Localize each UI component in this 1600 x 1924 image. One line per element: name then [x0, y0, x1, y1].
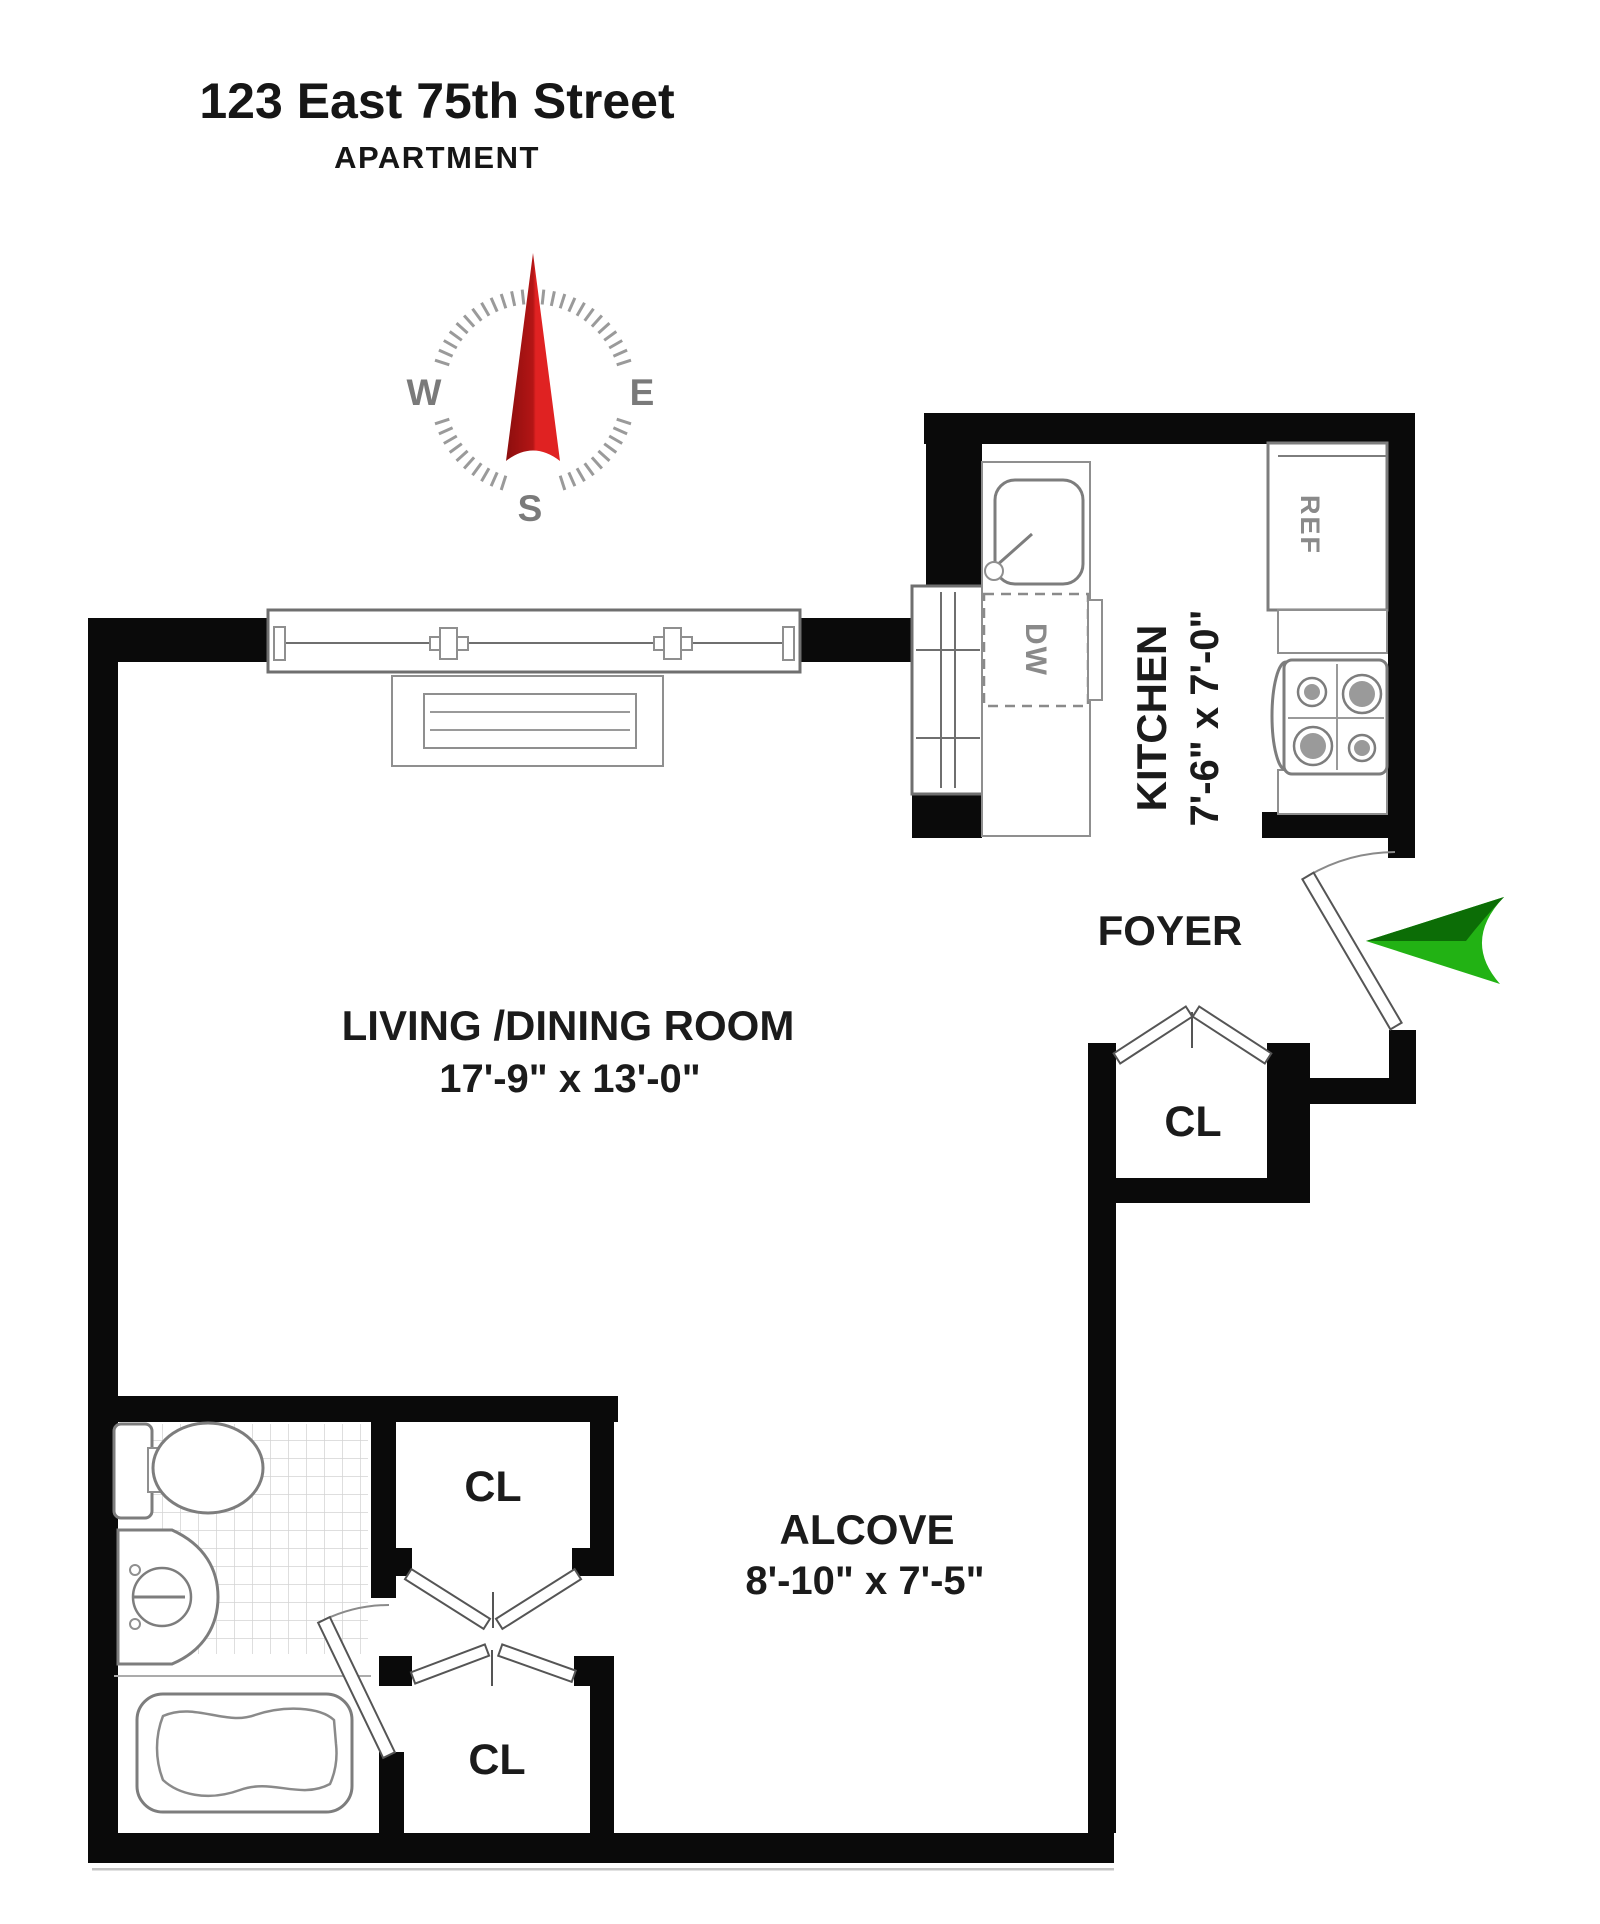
- compass-tick: [435, 419, 449, 424]
- compass-tick: [491, 298, 497, 312]
- page-subtitle: APARTMENT: [334, 140, 540, 175]
- sink-handle-icon: [130, 1619, 140, 1629]
- compass-tick: [569, 298, 575, 312]
- compass-tick: [585, 309, 594, 321]
- compass-tick: [592, 316, 602, 327]
- doors: [318, 852, 1402, 1758]
- door-jamb: [379, 1656, 412, 1686]
- floorplan-page: 123 East 75th Street APARTMENT W E S: [0, 0, 1600, 1924]
- compass-tick: [450, 444, 462, 453]
- compass-tick: [491, 472, 497, 486]
- kitchen-window: [912, 586, 984, 794]
- toilet-bowl-icon: [153, 1423, 263, 1513]
- label-alcove: ALCOVE: [779, 1506, 954, 1553]
- burner-icon: [1354, 740, 1370, 756]
- wall: [88, 1396, 618, 1422]
- door-jamb: [572, 1548, 614, 1576]
- compass-tick: [569, 472, 575, 486]
- entry-arrow-shading: [1366, 897, 1504, 941]
- refrigerator: [1268, 443, 1387, 610]
- compass-tick: [482, 303, 490, 316]
- wall: [1262, 812, 1390, 838]
- compass-tick: [435, 360, 449, 365]
- bifold-door-leaf: [496, 1569, 581, 1629]
- label-foyer: FOYER: [1098, 907, 1243, 954]
- wall: [379, 1752, 404, 1833]
- living-room-window: [268, 610, 800, 672]
- wall: [88, 1833, 1114, 1863]
- compass-tick: [604, 444, 616, 453]
- compass-label-east: E: [630, 372, 655, 413]
- compass-tick: [613, 428, 627, 434]
- compass-tick: [473, 309, 482, 321]
- compass-tick: [450, 332, 462, 341]
- compass-tick: [613, 350, 627, 356]
- bifold-door-leaf: [411, 1644, 489, 1683]
- compass-tick: [501, 294, 506, 308]
- compass-tick: [609, 436, 622, 444]
- wall: [790, 618, 928, 662]
- compass-tick: [604, 332, 616, 341]
- label-living-room: LIVING /DINING ROOM: [342, 1002, 795, 1049]
- compass-tick: [473, 463, 482, 475]
- compass-tick: [482, 468, 490, 481]
- faucet-base-icon: [985, 562, 1003, 580]
- radiator: [392, 676, 663, 766]
- wall: [88, 618, 118, 1862]
- counter-edge: [1088, 600, 1102, 700]
- compass-tick: [560, 294, 565, 308]
- compass-tick: [560, 476, 565, 490]
- kitchen-sink-icon: [995, 480, 1083, 584]
- refrigerator-label: REF: [1295, 495, 1325, 555]
- wall: [1088, 1178, 1310, 1203]
- label-alcove-closet-lower: CL: [468, 1736, 525, 1784]
- label-alcove-closet-upper: CL: [464, 1463, 521, 1511]
- window-mullion: [440, 628, 457, 659]
- burner-icon: [1349, 681, 1375, 707]
- door-jamb: [371, 1548, 412, 1576]
- compass-tick: [598, 323, 609, 333]
- bifold-door-leaf: [1193, 1007, 1272, 1064]
- compass-tick: [577, 303, 585, 316]
- compass-tick: [522, 290, 524, 305]
- compass-tick: [577, 468, 585, 481]
- radiator-grille: [424, 694, 636, 748]
- bifold-door-leaf: [498, 1644, 576, 1681]
- burner-icon: [1304, 684, 1320, 700]
- compass-tick: [464, 457, 474, 468]
- label-kitchen-dims: 7'-6" x 7'-0": [1183, 609, 1227, 826]
- wall: [1388, 413, 1415, 858]
- compass-rose: W E S: [407, 253, 655, 529]
- bathtub-basin-icon: [157, 1709, 337, 1796]
- compass-tick: [551, 291, 554, 306]
- compass-tick: [592, 457, 602, 468]
- wall-shadow-line: [92, 1868, 1114, 1871]
- entry-direction-arrow-icon: [1366, 897, 1504, 984]
- bifold-door-leaf: [1114, 1007, 1193, 1064]
- wall: [924, 413, 1415, 444]
- compass-tick: [444, 341, 457, 349]
- kitchen-counter: [1278, 610, 1387, 653]
- compass-tick: [512, 291, 515, 306]
- bifold-door-leaf: [405, 1569, 490, 1629]
- window-frame: [912, 586, 984, 794]
- compass-tick: [598, 451, 609, 461]
- compass-tick: [439, 350, 453, 356]
- compass-tick: [457, 323, 468, 333]
- compass-label-south: S: [518, 488, 543, 529]
- entry-door: [1302, 873, 1401, 1030]
- stove-icon: [1272, 660, 1387, 774]
- label-living-room-dims: 17'-9" x 13'-0": [439, 1057, 701, 1101]
- compass-tick: [444, 436, 457, 444]
- toilet-tank-icon: [114, 1424, 152, 1518]
- wall: [1088, 1043, 1116, 1833]
- compass-label-west: W: [407, 372, 442, 413]
- window-end-cap: [783, 627, 794, 660]
- window-end-cap: [274, 627, 285, 660]
- compass-needle-icon: [506, 253, 560, 461]
- compass-tick: [439, 428, 453, 434]
- wall: [1310, 1078, 1416, 1104]
- burner-icon: [1300, 733, 1326, 759]
- door-jamb: [574, 1656, 614, 1686]
- compass-tick: [617, 360, 631, 365]
- compass-tick: [457, 451, 468, 461]
- window-mullion-tab: [681, 637, 692, 650]
- window-mullion-tab: [457, 637, 468, 650]
- dishwasher-label: DW: [1019, 623, 1052, 677]
- kitchen-counter: [1278, 770, 1387, 814]
- label-foyer-closet: CL: [1164, 1098, 1221, 1146]
- sink-handle-icon: [130, 1565, 140, 1575]
- compass-tick: [585, 463, 594, 475]
- window-frame: [268, 610, 800, 672]
- compass-tick: [617, 419, 631, 424]
- label-kitchen: KITCHEN: [1128, 625, 1175, 812]
- compass-tick: [609, 341, 622, 349]
- compass-tick: [501, 476, 506, 490]
- compass-tick: [464, 316, 474, 327]
- window-mullion: [664, 628, 681, 659]
- wall: [926, 413, 982, 588]
- page-title: 123 East 75th Street: [199, 73, 675, 129]
- floorplan-drawing: 123 East 75th Street APARTMENT W E S: [0, 0, 1600, 1924]
- compass-tick: [542, 290, 544, 305]
- entry-door-swing: [1308, 852, 1395, 876]
- label-alcove-dims: 8'-10" x 7'-5": [745, 1559, 984, 1603]
- wall: [912, 794, 982, 838]
